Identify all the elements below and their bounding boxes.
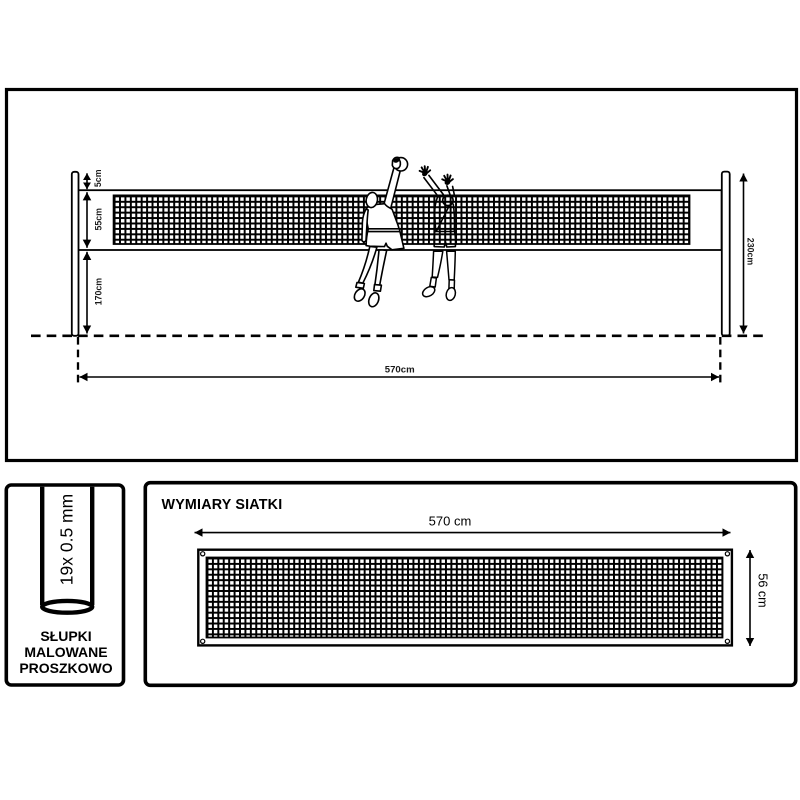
svg-text:WYMIARY SIATKI: WYMIARY SIATKI	[162, 497, 283, 513]
svg-text:170cm: 170cm	[94, 278, 104, 306]
svg-text:PROSZKOWO: PROSZKOWO	[19, 660, 112, 676]
svg-text:55cm: 55cm	[94, 208, 104, 231]
svg-text:230cm: 230cm	[745, 238, 755, 266]
svg-text:SŁUPKI: SŁUPKI	[40, 628, 91, 644]
svg-text:MALOWANE: MALOWANE	[24, 644, 107, 660]
svg-text:56 cm: 56 cm	[756, 573, 770, 607]
svg-text:5cm: 5cm	[93, 169, 103, 187]
svg-text:19x 0.5 mm: 19x 0.5 mm	[57, 494, 77, 585]
svg-text:570 cm: 570 cm	[429, 514, 472, 529]
svg-text:570cm: 570cm	[385, 365, 415, 376]
